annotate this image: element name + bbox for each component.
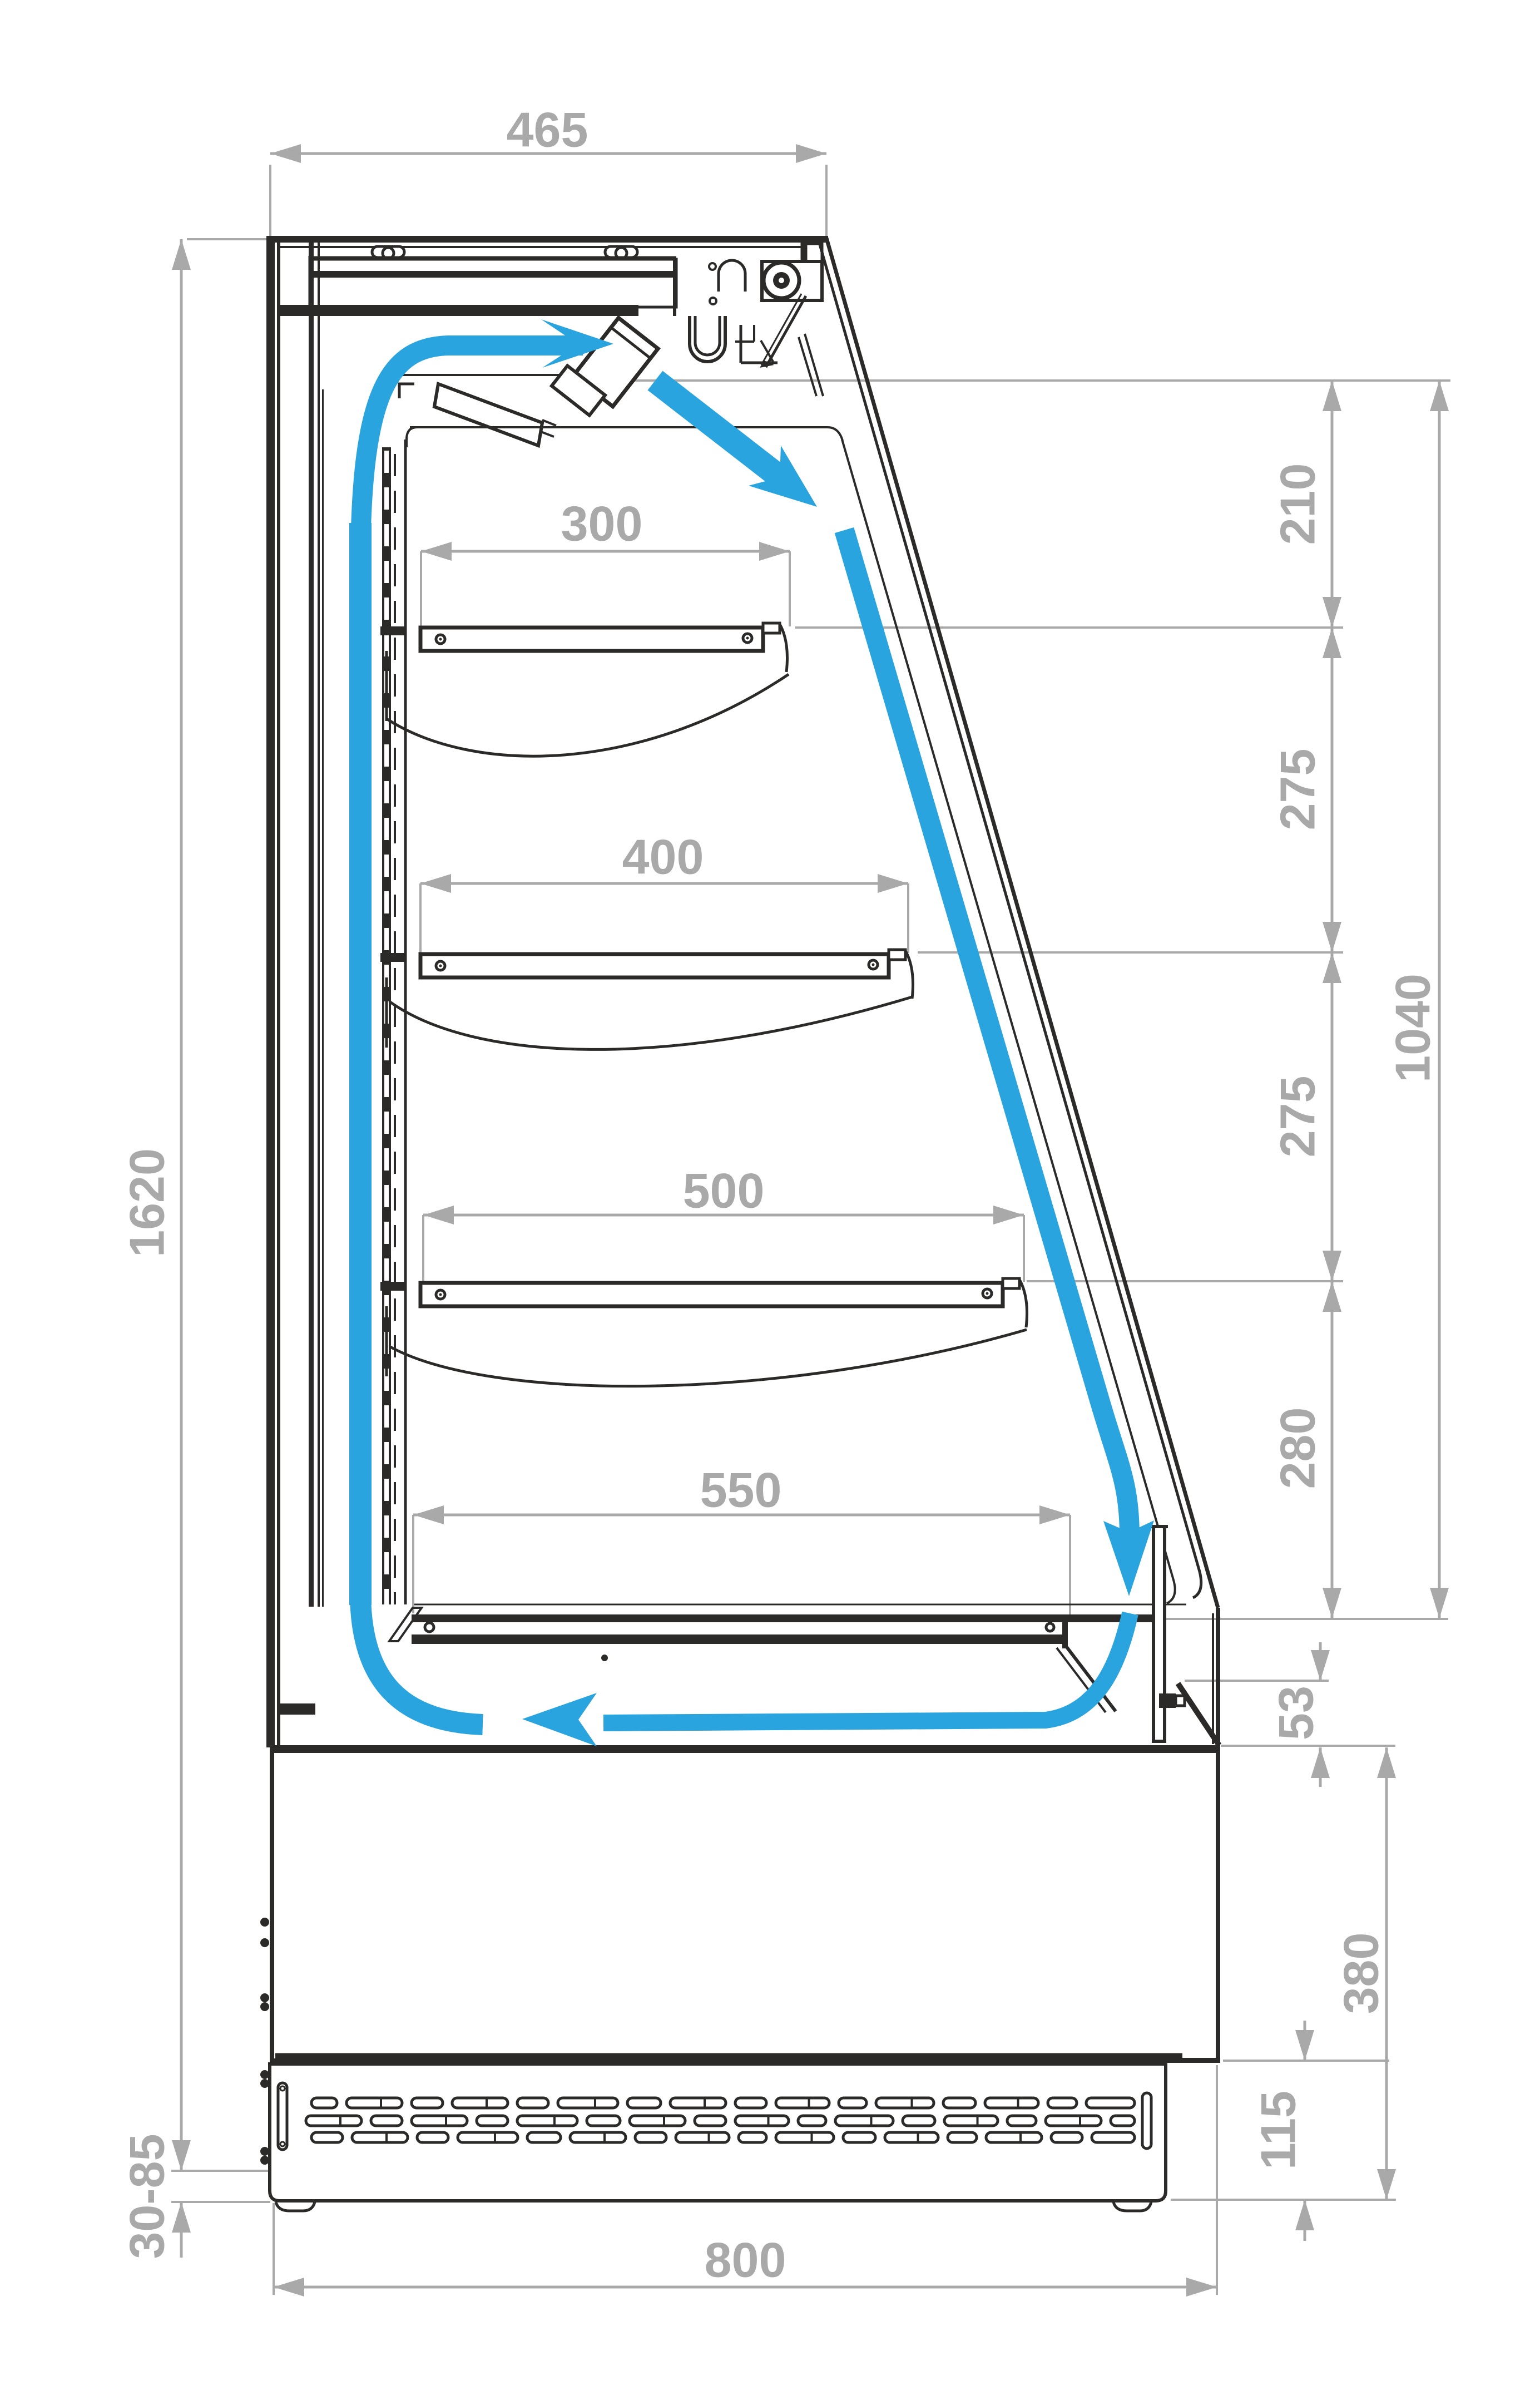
svg-text:53: 53: [1269, 1686, 1324, 1740]
svg-text:500: 500: [683, 1163, 765, 1218]
svg-text:1620: 1620: [120, 1148, 175, 1257]
svg-text:210: 210: [1270, 463, 1325, 545]
svg-text:465: 465: [507, 102, 588, 157]
svg-text:275: 275: [1270, 1076, 1325, 1158]
svg-text:800: 800: [705, 2233, 786, 2288]
svg-text:400: 400: [622, 829, 704, 885]
svg-text:1040: 1040: [1385, 974, 1440, 1083]
svg-text:115: 115: [1251, 2091, 1306, 2170]
svg-text:30-85: 30-85: [120, 2134, 175, 2259]
svg-text:550: 550: [700, 1463, 782, 1518]
svg-text:280: 280: [1270, 1408, 1325, 1489]
svg-text:275: 275: [1270, 749, 1325, 831]
svg-text:380: 380: [1334, 1933, 1389, 2014]
svg-text:300: 300: [561, 496, 643, 551]
